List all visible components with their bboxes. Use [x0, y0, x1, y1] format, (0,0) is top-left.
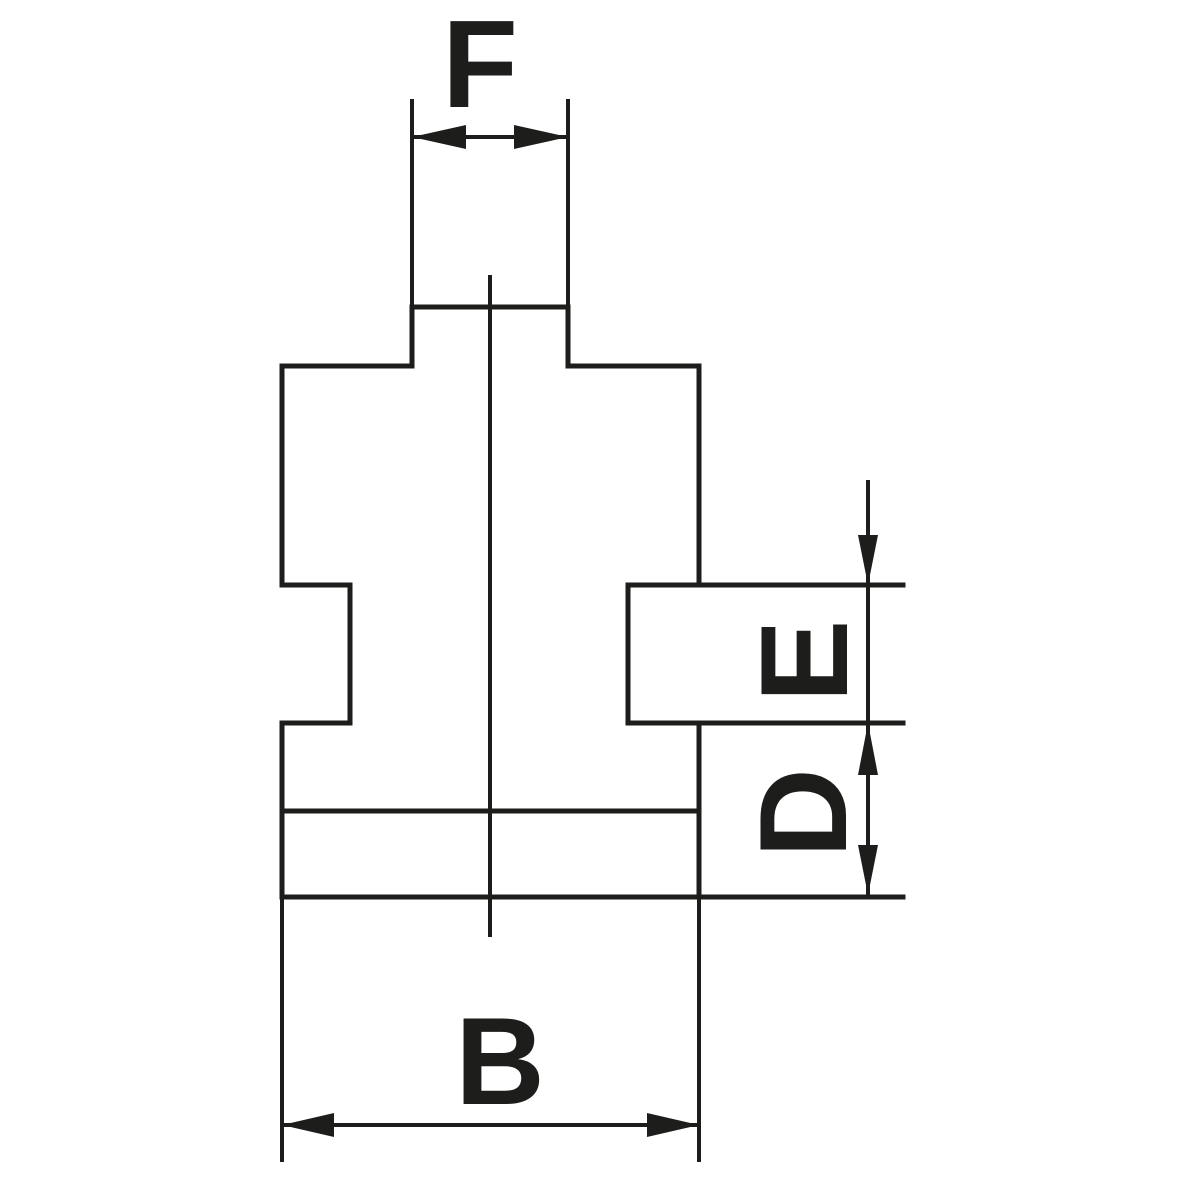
dim-label-f: F — [442, 0, 518, 134]
dim-b-arrowhead-right — [647, 1113, 699, 1137]
jaw-cross-section-drawing: F E D B — [0, 0, 1200, 1200]
dim-label-e: E — [736, 620, 874, 703]
dim-label-b: B — [455, 993, 545, 1131]
technical-drawing-canvas: F E D B — [0, 0, 1200, 1200]
dim-e-arrowhead-top — [858, 535, 878, 585]
dim-e-d-arrowhead-middle — [858, 723, 878, 775]
dim-label-d: D — [735, 768, 873, 858]
dim-b-arrowhead-left — [282, 1113, 334, 1137]
dim-f-arrowhead-right — [514, 125, 568, 149]
